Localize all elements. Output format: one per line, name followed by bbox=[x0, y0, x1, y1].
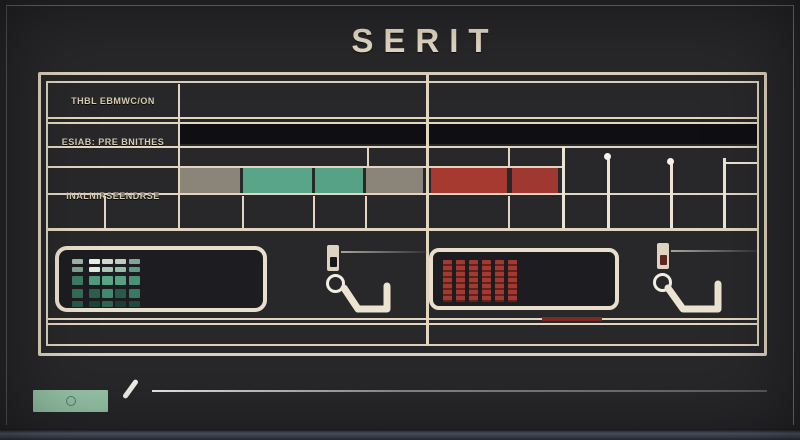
timeline-cell-gray-1 bbox=[180, 168, 240, 193]
led-cell bbox=[115, 276, 126, 285]
plug-socket bbox=[330, 257, 337, 267]
dot-pin-icon bbox=[604, 153, 611, 160]
red-bar bbox=[495, 260, 504, 302]
wire-line bbox=[341, 251, 427, 253]
pin-line bbox=[607, 158, 610, 228]
led-cell bbox=[129, 289, 140, 298]
timeline-cell-red-2 bbox=[512, 168, 558, 193]
led-cell bbox=[89, 301, 100, 307]
timeline-cell-red-1 bbox=[431, 168, 507, 193]
led-cell bbox=[89, 276, 100, 285]
led-cell bbox=[129, 267, 140, 272]
red-bar bbox=[456, 260, 465, 302]
led-matrix bbox=[72, 259, 162, 307]
grid-line bbox=[48, 228, 757, 231]
pin-line bbox=[670, 163, 673, 228]
green-action-button[interactable] bbox=[33, 390, 108, 412]
timeline-cell-teal-1 bbox=[243, 168, 312, 193]
button-circle-icon bbox=[66, 396, 76, 406]
black-status-bar bbox=[180, 124, 757, 144]
plug-icon[interactable] bbox=[657, 243, 669, 269]
grid-line bbox=[48, 323, 757, 325]
wire-line bbox=[671, 250, 757, 252]
led-cell bbox=[102, 301, 113, 307]
led-cell bbox=[129, 301, 140, 307]
led-cell bbox=[129, 276, 140, 285]
dot-pin-icon bbox=[667, 158, 674, 165]
led-cell bbox=[115, 301, 126, 307]
red-bar bbox=[482, 260, 491, 302]
red-underline-segment bbox=[542, 317, 602, 321]
led-cell bbox=[72, 267, 83, 272]
led-cell bbox=[102, 289, 113, 298]
grid-divider bbox=[242, 196, 244, 228]
led-cell bbox=[72, 259, 83, 264]
grid-divider bbox=[508, 147, 510, 166]
pin-branch-line bbox=[723, 162, 757, 164]
led-cell bbox=[102, 276, 113, 285]
red-bar bbox=[508, 260, 517, 302]
label-column-divider bbox=[178, 84, 180, 231]
plug-socket bbox=[660, 255, 667, 265]
major-column-divider bbox=[426, 74, 429, 345]
grid-divider bbox=[104, 196, 106, 228]
led-cell bbox=[115, 267, 126, 272]
grid-line bbox=[48, 318, 757, 320]
footer-rule-line bbox=[152, 390, 767, 392]
pin-line bbox=[723, 158, 726, 228]
led-display-panel bbox=[55, 246, 267, 312]
grid-divider bbox=[365, 196, 367, 228]
led-cell bbox=[102, 267, 113, 272]
control-panel-stage: SERIT THBL EBMWC/ON ESIAB: PRE BNITHES I… bbox=[0, 0, 800, 440]
led-cell bbox=[89, 289, 100, 298]
timeline-cell-teal-2 bbox=[315, 168, 363, 193]
pin-line bbox=[562, 147, 565, 228]
led-cell bbox=[72, 301, 83, 307]
bar-display-panel bbox=[429, 248, 619, 310]
red-bar bbox=[469, 260, 478, 302]
row-label-1: THBL EBMWC/ON bbox=[50, 88, 176, 114]
led-cell bbox=[89, 267, 100, 272]
page-title: SERIT bbox=[351, 22, 498, 60]
led-cell bbox=[115, 259, 126, 264]
plug-icon[interactable] bbox=[327, 245, 339, 271]
row-label-3: INALNIRSEENDRSE bbox=[50, 183, 176, 209]
hook-icon bbox=[340, 282, 394, 316]
timeline-cell-gray-2 bbox=[366, 168, 423, 193]
led-cell bbox=[72, 276, 83, 285]
grid-divider bbox=[313, 196, 315, 228]
led-cell bbox=[72, 289, 83, 298]
led-cell bbox=[129, 259, 140, 264]
grid-divider bbox=[367, 147, 369, 166]
led-cell bbox=[102, 259, 113, 264]
grid-divider bbox=[508, 196, 510, 228]
grid-line bbox=[48, 117, 757, 119]
led-cell bbox=[89, 259, 100, 264]
bottom-edge-band bbox=[0, 429, 800, 440]
hook-icon bbox=[664, 280, 724, 315]
row-label-2: ESIAB: PRE BNITHES bbox=[50, 129, 176, 155]
led-cell bbox=[115, 289, 126, 298]
red-bar bbox=[443, 260, 452, 302]
